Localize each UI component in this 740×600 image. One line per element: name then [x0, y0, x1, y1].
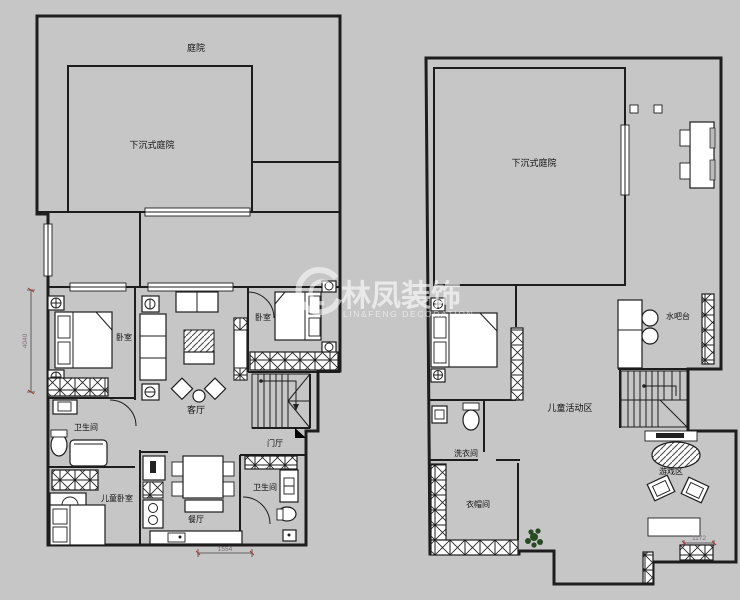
bed-left [48, 296, 112, 396]
room-label-cloakroom: 衣帽间 [466, 499, 490, 509]
stairs-right [621, 371, 697, 441]
terrace-table [630, 105, 718, 188]
dimension-bottom-right: 1172 [682, 535, 716, 546]
room-label-bedroom-right: 卧室 [255, 312, 271, 322]
watermark: 林凤装饰 LIN&FENG DECORATION [299, 270, 475, 319]
room-label-laundry: 洗衣间 [454, 448, 478, 458]
window-column-right [702, 294, 714, 364]
living-room-furniture [140, 292, 247, 402]
left-plan: 庭院 下沉式庭院 卧室 卧室 客厅 卫生间 儿童卧室 餐厅 门厅 卫生间 404… [22, 16, 340, 557]
svg-text:1172: 1172 [692, 535, 706, 542]
room-label-kids-bedroom: 儿童卧室 [101, 493, 133, 503]
room-label-entry-hall: 门厅 [267, 438, 283, 448]
room-label-game-area: 游戏区 [659, 466, 683, 476]
kids-bedroom-furniture [50, 470, 105, 545]
laundry-fixtures [432, 403, 479, 430]
sunken-courtyard-walls [68, 66, 252, 212]
room-label-dining-room: 餐厅 [188, 515, 204, 524]
room-label-bathroom-lower: 卫生间 [253, 482, 277, 492]
room-label-bathroom-upper: 卫生间 [74, 422, 98, 432]
stairs [252, 374, 310, 438]
room-label-kids-activity: 儿童活动区 [547, 402, 592, 413]
room-label-courtyard: 庭院 [187, 42, 205, 53]
room-label-sunken-courtyard-left: 下沉式庭院 [129, 139, 174, 150]
bed-right [248, 281, 338, 370]
plant [525, 528, 543, 547]
bathroom-lower-fixtures [243, 456, 298, 541]
window-strips [44, 208, 250, 291]
room-label-water-bar: 水吧台 [666, 311, 690, 321]
right-plan: 下沉式庭院 水吧台 儿童活动区 洗衣间 衣帽间 游戏区 1172 [426, 58, 736, 584]
courtyard-step [513, 207, 625, 285]
floorplan-canvas: 庭院 下沉式庭院 卧室 卧室 客厅 卫生间 儿童卧室 餐厅 门厅 卫生间 404… [0, 0, 740, 600]
dimension-left: 4040 [22, 288, 35, 394]
wardrobe-row [48, 378, 108, 396]
upper-partitions [37, 66, 340, 287]
svg-text:4040: 4040 [22, 333, 29, 348]
watermark-subtitle: LIN&FENG DECORATION [343, 309, 474, 319]
cloakroom-wardrobes [431, 464, 518, 555]
room-label-sunken-courtyard-right: 下沉式庭院 [511, 157, 556, 168]
room-label-living-room: 客厅 [187, 404, 205, 415]
bathroom-upper-fixtures [51, 400, 136, 466]
room-label-bedroom-left: 卧室 [116, 332, 132, 342]
floorplan-drawing: 庭院 下沉式庭院 卧室 卧室 客厅 卫生间 儿童卧室 餐厅 门厅 卫生间 404… [0, 0, 740, 600]
dimension-bottom: 1554 [196, 546, 254, 557]
svg-text:1554: 1554 [218, 546, 233, 553]
sunken-courtyard-walls-right [434, 68, 625, 285]
water-bar [618, 300, 658, 368]
dining-table [172, 456, 234, 512]
